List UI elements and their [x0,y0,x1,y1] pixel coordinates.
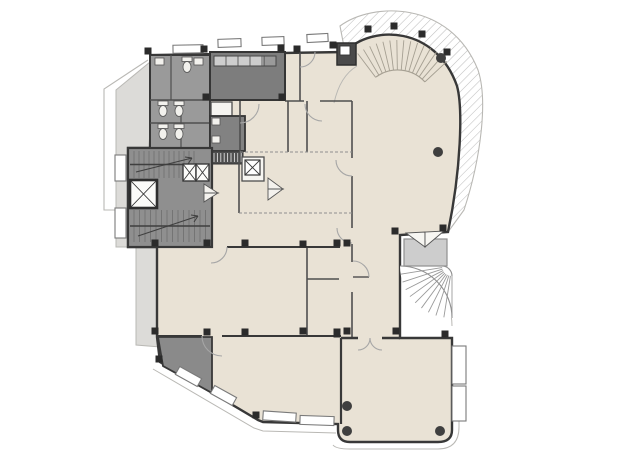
toilet [158,101,168,117]
duct-top-box [340,46,350,55]
sink [155,58,164,65]
window [263,411,297,422]
toilet [174,101,184,117]
window [173,45,203,54]
window [115,155,126,181]
counter-box [264,56,276,66]
fixture [212,118,220,125]
window [307,33,328,42]
shaft-left [183,164,196,181]
toilet [182,57,192,73]
plan-layers [104,11,483,449]
floor-plan [0,0,637,450]
window [115,208,126,238]
shaft-right [196,164,209,181]
window [300,415,334,425]
elevator [130,180,157,208]
window-bay [452,386,466,421]
window [218,39,241,48]
sink [194,58,203,65]
fixture [212,136,220,143]
toilet [158,124,168,140]
shaft-room-duct [245,160,260,175]
window [262,37,284,46]
window-bay [452,346,466,384]
toilet [174,124,184,140]
floor-plan-svg [0,0,637,450]
closet [211,102,232,116]
